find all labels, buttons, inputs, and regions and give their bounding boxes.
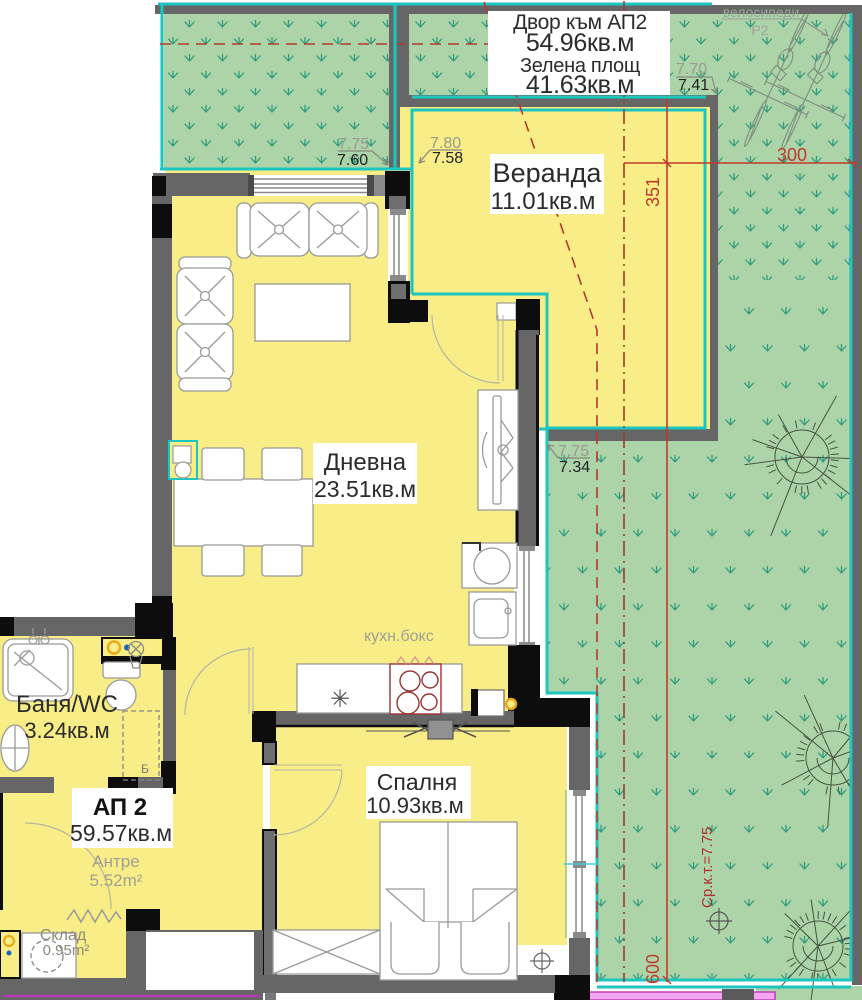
svg-text:600: 600 xyxy=(643,954,663,984)
svg-text:АП 2: АП 2 xyxy=(93,794,147,821)
svg-text:Антре: Антре xyxy=(92,852,139,871)
svg-text:кухн.бокс: кухн.бокс xyxy=(364,628,434,645)
svg-text:59.57кв.м: 59.57кв.м xyxy=(70,820,172,846)
svg-text:Веранда: Веранда xyxy=(493,158,603,188)
svg-text:41.63кв.м: 41.63кв.м xyxy=(526,71,634,99)
svg-text:7.60: 7.60 xyxy=(337,152,368,169)
svg-text:✳: ✳ xyxy=(330,686,350,713)
svg-text:7.58: 7.58 xyxy=(432,150,463,167)
svg-text:3.24кв.м: 3.24кв.м xyxy=(24,718,109,743)
svg-text:велосипеди: велосипеди xyxy=(723,4,800,20)
svg-text:5.52m²: 5.52m² xyxy=(90,871,143,890)
svg-text:Баня/WC: Баня/WC xyxy=(16,691,118,718)
svg-text:Ср.к.т.=7.75: Ср.к.т.=7.75 xyxy=(699,827,716,908)
svg-text:0.95m²: 0.95m² xyxy=(43,942,90,959)
svg-text:10.93кв.м: 10.93кв.м xyxy=(366,793,464,818)
svg-text:7.34: 7.34 xyxy=(559,459,590,476)
svg-text:54.96кв.м: 54.96кв.м xyxy=(526,29,634,57)
svg-text:7.41: 7.41 xyxy=(678,77,709,94)
svg-text:Дневна: Дневна xyxy=(324,449,407,476)
svg-text:11.01кв.м: 11.01кв.м xyxy=(491,188,596,215)
svg-text:7.70: 7.70 xyxy=(676,61,707,78)
svg-text:Р2: Р2 xyxy=(751,22,768,38)
svg-text:Б: Б xyxy=(141,762,149,776)
svg-text:23.51кв.м: 23.51кв.м xyxy=(314,476,416,502)
svg-text:351: 351 xyxy=(643,177,663,207)
svg-text:300: 300 xyxy=(777,145,807,165)
svg-text:Спалня: Спалня xyxy=(377,769,457,795)
